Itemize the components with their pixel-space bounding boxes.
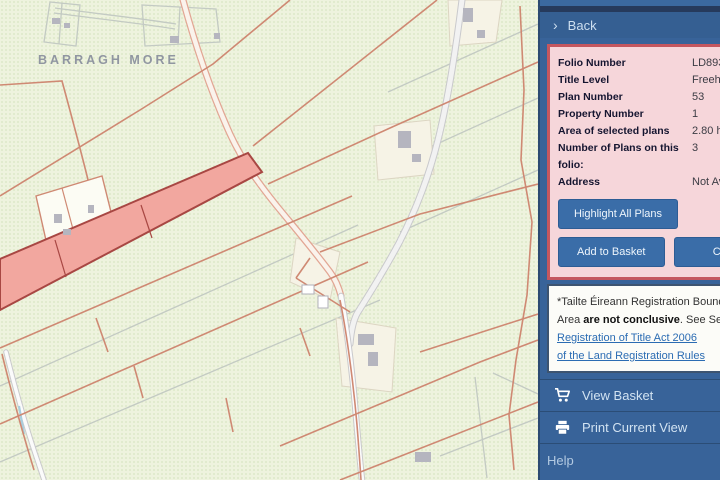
plans-count-label: Number of Plans on this folio: (558, 140, 688, 174)
registration-act-link[interactable]: Registration of Title Act 2006 (557, 332, 697, 344)
folio-info-panel: Folio Number LD8936 Title Level Freehold… (547, 44, 720, 280)
area-value: 2.80 hectares (692, 123, 720, 140)
print-icon (554, 420, 571, 435)
close-button[interactable]: Close (674, 237, 720, 267)
chevron-right-icon: › (553, 18, 558, 32)
sidebar-menu: View Basket Print Current View Help (540, 379, 720, 477)
area-label: Area of selected plans (558, 123, 688, 140)
back-label: Back (568, 18, 597, 33)
land-registration-rules-link[interactable]: of the Land Registration Rules (557, 350, 705, 362)
address-value: Not Available (692, 174, 720, 191)
view-basket-item[interactable]: View Basket (540, 380, 720, 412)
basket-icon (554, 388, 571, 403)
help-item[interactable]: Help (540, 444, 720, 477)
disclaimer-line-2-bold: are not conclusive (583, 314, 680, 326)
help-label: Help (547, 453, 574, 468)
plans-count-value: 3 (692, 140, 720, 174)
view-basket-label: View Basket (582, 388, 653, 403)
property-number-label: Property Number (558, 106, 688, 123)
townland-label: BARRAGH MORE (38, 53, 179, 67)
map-canvas[interactable]: BARRAGH MORE (0, 0, 538, 480)
back-button[interactable]: › Back (540, 12, 720, 38)
road-bottom-left-fill (6, 352, 44, 480)
print-current-view-label: Print Current View (582, 420, 687, 435)
plan-number-value: 53 (692, 89, 720, 106)
address-label: Address (558, 174, 688, 191)
title-level-label: Title Level (558, 72, 688, 89)
title-level-value: Freehold (692, 72, 720, 89)
folio-number-label: Folio Number (558, 55, 688, 72)
add-to-basket-button[interactable]: Add to Basket (558, 237, 665, 267)
plan-number-label: Plan Number (558, 89, 688, 106)
folio-number-value: LD8936 (692, 55, 720, 72)
map-drawing: BARRAGH MORE (0, 0, 538, 480)
disclaimer-box: *Tailte Éireann Registration Boundaries … (547, 284, 720, 373)
disclaimer-line-2-post: . See Section 85 of the (680, 314, 720, 326)
folio-details: Folio Number LD8936 Title Level Freehold… (558, 55, 720, 191)
road-top-left-casing (183, 0, 341, 296)
sidebar: › Back Folio Number LD8936 Title Level F… (538, 0, 720, 480)
disclaimer-line-1: *Tailte Éireann Registration Boundaries … (557, 293, 720, 311)
highlight-all-plans-button[interactable]: Highlight All Plans (558, 199, 678, 229)
print-current-view-item[interactable]: Print Current View (540, 412, 720, 444)
property-number-value: 1 (692, 106, 720, 123)
disclaimer-line-2: Area are not conclusive. See Section 85 … (557, 311, 720, 329)
farmyard-areas (290, 0, 502, 392)
disclaimer-line-2-pre: Area (557, 314, 583, 326)
